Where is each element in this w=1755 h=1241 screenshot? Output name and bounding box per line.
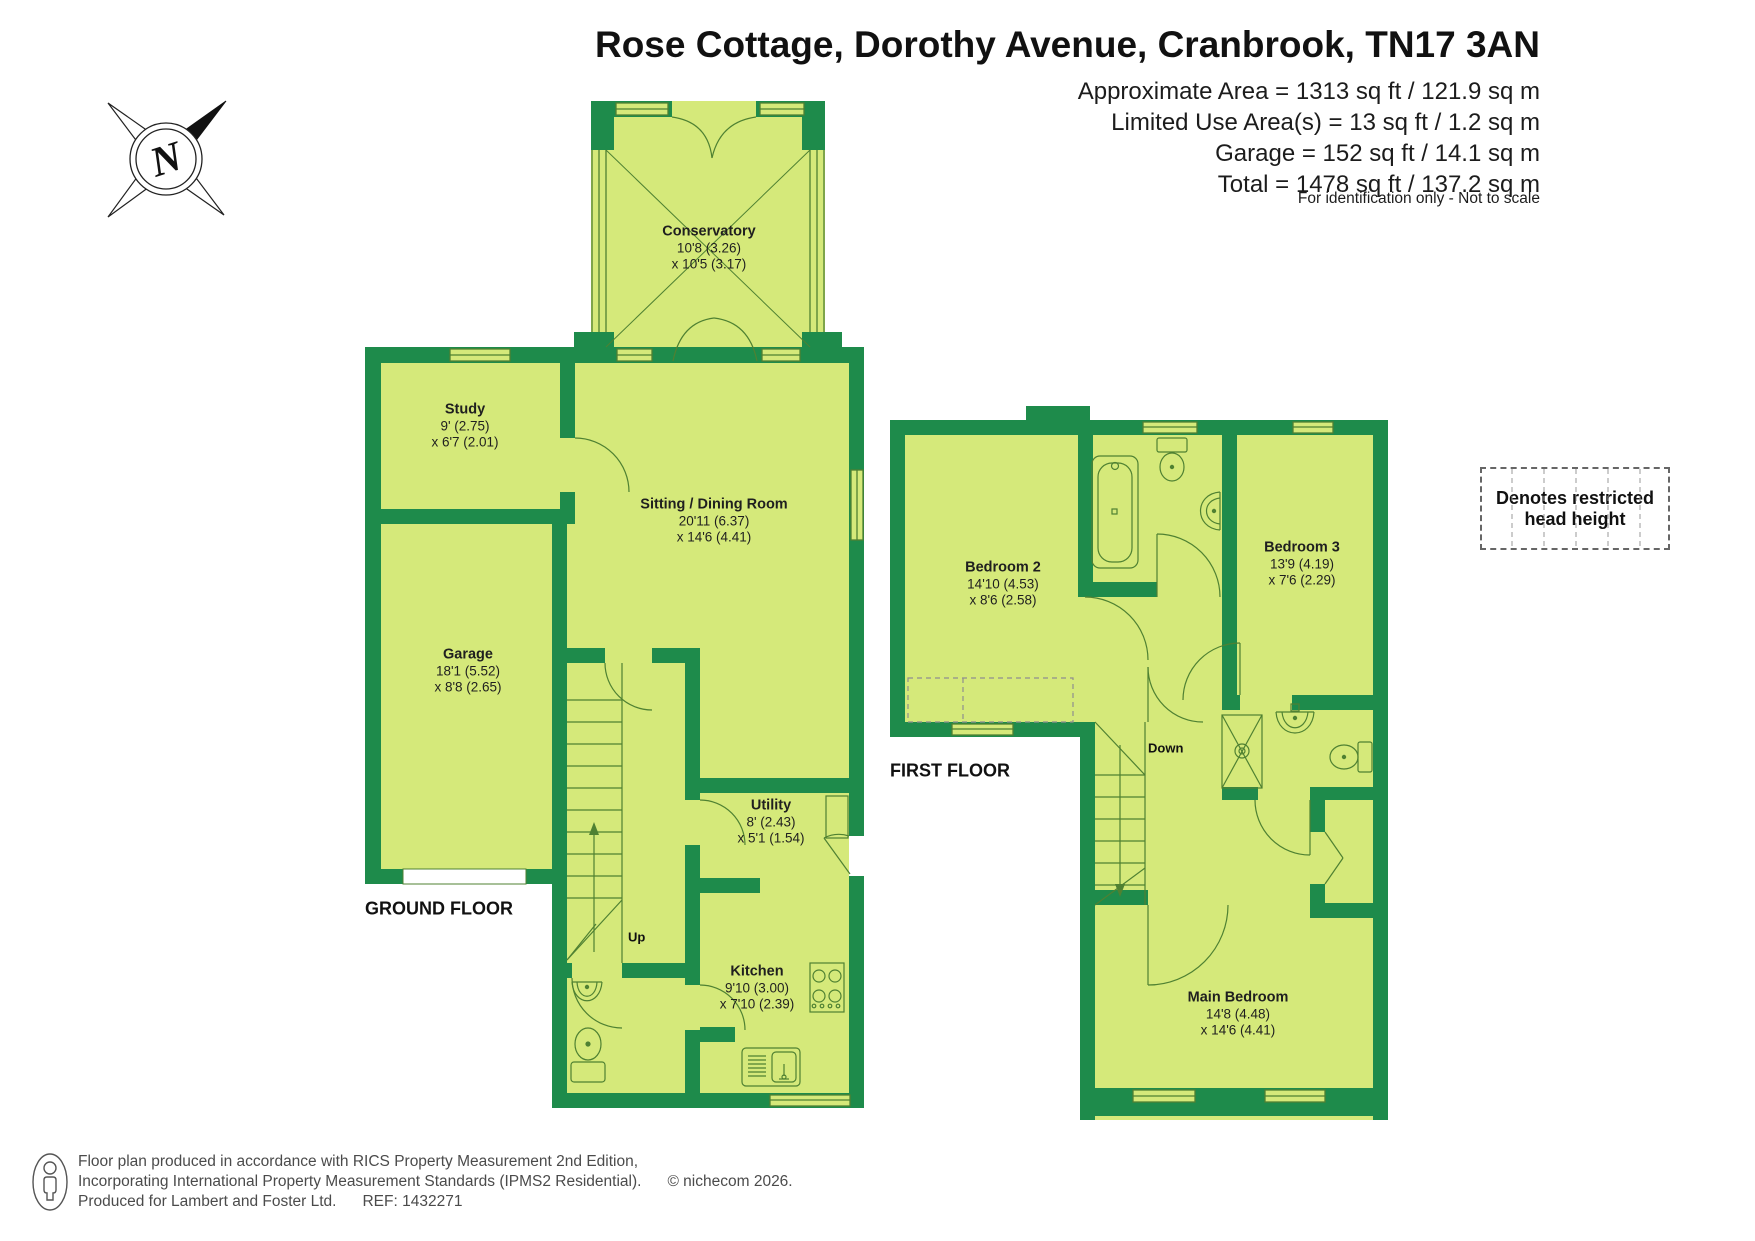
- room-label-main-bedroom: Main Bedroom 14'8 (4.48) x 14'6 (4.41): [1188, 990, 1289, 1039]
- stairs-up-label: Up: [628, 930, 645, 945]
- ground-floor-label: GROUND FLOOR: [365, 899, 513, 920]
- room-label-bedroom3: Bedroom 3 13'9 (4.19) x 7'6 (2.29): [1264, 540, 1340, 589]
- footer-ref: REF: 1432271: [362, 1193, 462, 1210]
- footer-line2: Incorporating International Property Mea…: [78, 1172, 793, 1192]
- compass-icon: N: [108, 101, 226, 217]
- utility-back-door-opening: [849, 836, 864, 876]
- footer: Floor plan produced in accordance with R…: [78, 1152, 793, 1212]
- ground-floor-plan: [365, 101, 864, 1108]
- footer-copyright: © nichecom 2026.: [667, 1173, 792, 1190]
- floorplan-drawing: N: [0, 0, 1755, 1241]
- footer-line3: Produced for Lambert and Foster Ltd.REF:…: [78, 1192, 793, 1212]
- room-label-kitchen: Kitchen 9'10 (3.00) x 7'10 (2.39): [720, 964, 795, 1013]
- first-floor-label: FIRST FLOOR: [890, 761, 1010, 782]
- room-label-sitting-dining: Sitting / Dining Room 20'11 (6.37) x 14'…: [640, 497, 787, 546]
- person-icon: [33, 1154, 67, 1210]
- restricted-legend-text: Denotes restricted head height: [1496, 488, 1654, 529]
- footer-line1: Floor plan produced in accordance with R…: [78, 1152, 793, 1172]
- room-label-garage: Garage 18'1 (5.52) x 8'8 (2.65): [434, 647, 501, 696]
- ground-room-fill: [365, 101, 864, 1108]
- stairs-down-label: Down: [1148, 741, 1183, 756]
- room-label-utility: Utility 8' (2.43) x 5'1 (1.54): [737, 798, 804, 847]
- restricted-legend-box: Denotes restricted head height: [1480, 467, 1670, 550]
- room-label-study: Study 9' (2.75) x 6'7 (2.01): [431, 402, 498, 451]
- garage-door-opening: [403, 869, 526, 884]
- floorplan-page: Rose Cottage, Dorothy Avenue, Cranbrook,…: [0, 0, 1755, 1241]
- room-label-conservatory: Conservatory 10'8 (3.26) x 10'5 (3.17): [662, 224, 755, 273]
- room-label-bedroom2: Bedroom 2 14'10 (4.53) x 8'6 (2.58): [965, 560, 1041, 609]
